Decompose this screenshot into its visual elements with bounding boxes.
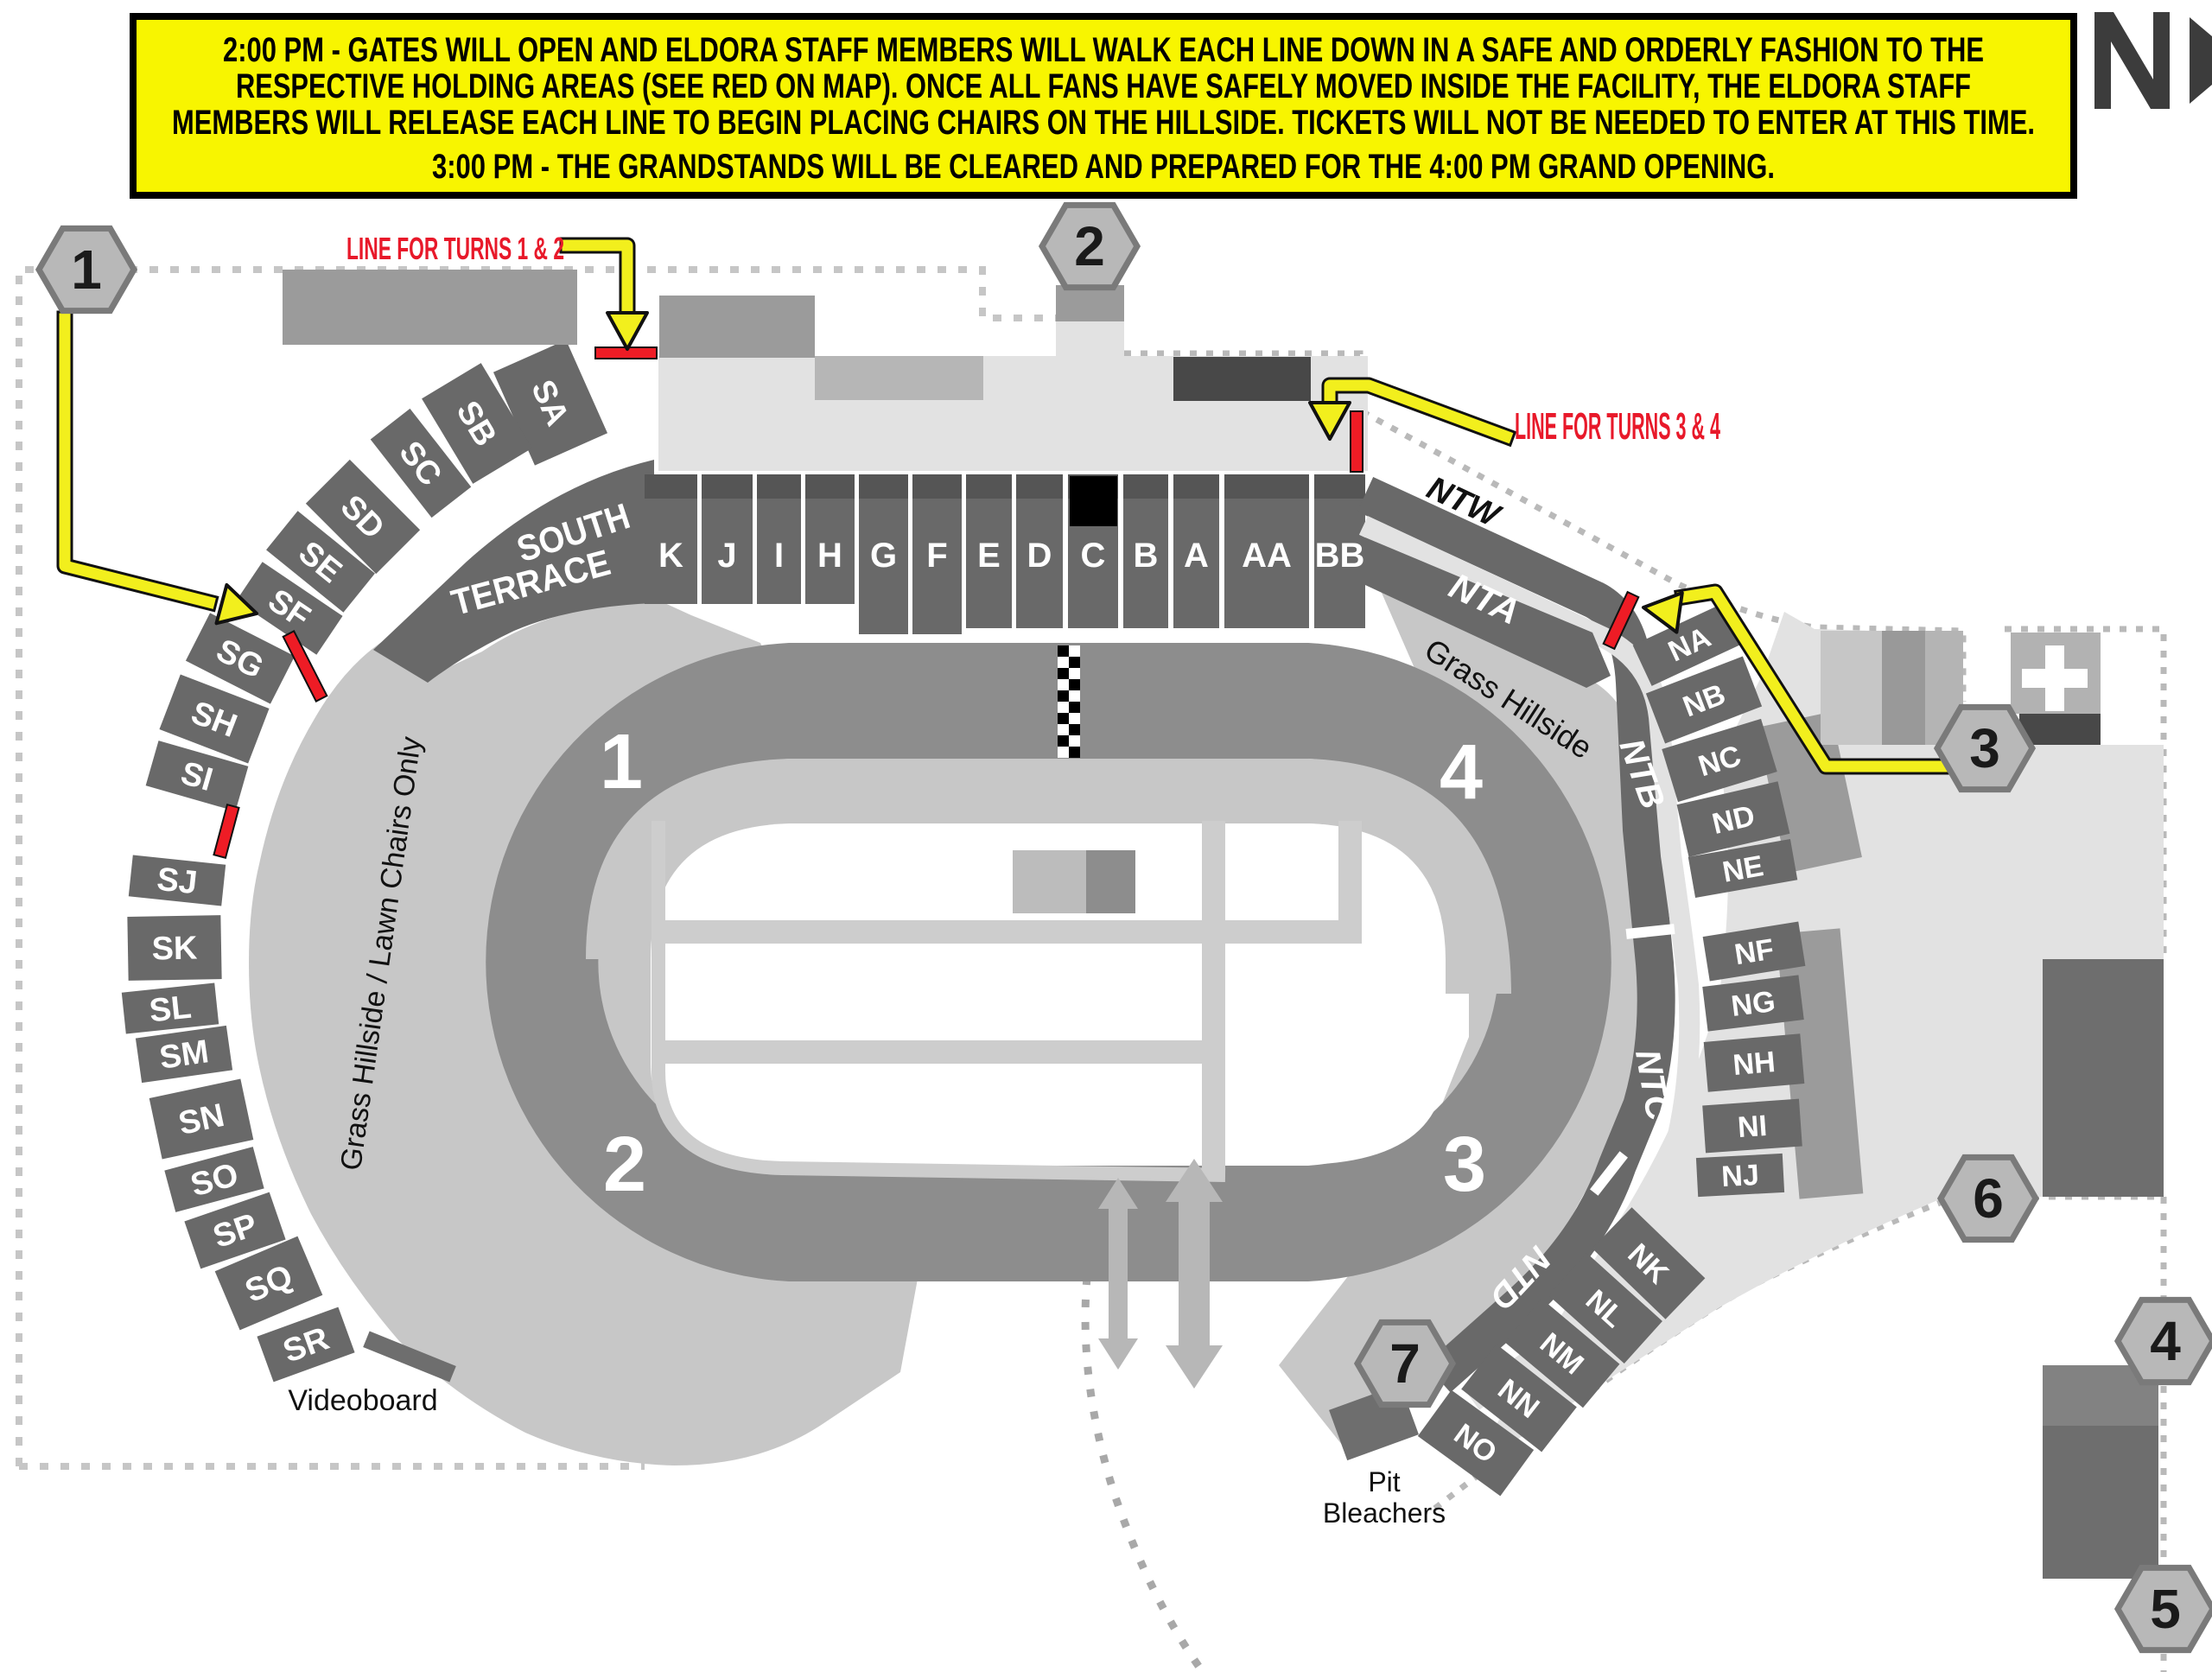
svg-text:Pit: Pit — [1368, 1466, 1400, 1497]
svg-text:6: 6 — [1973, 1167, 2004, 1230]
svg-text:1: 1 — [600, 719, 643, 805]
svg-text:LINE FOR TURNS 3 & 4: LINE FOR TURNS 3 & 4 — [1515, 405, 1720, 448]
svg-text:K: K — [658, 537, 683, 575]
svg-text:MEMBERS WILL RELEASE EACH LINE: MEMBERS WILL RELEASE EACH LINE TO BEGIN … — [172, 104, 2035, 142]
svg-text:J: J — [717, 537, 736, 575]
svg-text:NJ: NJ — [1720, 1159, 1759, 1193]
svg-text:NH: NH — [1732, 1046, 1777, 1082]
svg-text:4: 4 — [2150, 1310, 2181, 1372]
svg-text:Videoboard: Videoboard — [288, 1384, 437, 1417]
svg-text:AA: AA — [1242, 537, 1292, 575]
svg-text:2: 2 — [1074, 215, 1105, 277]
svg-text:SL: SL — [148, 989, 194, 1030]
svg-text:G: G — [870, 537, 897, 575]
svg-text:A: A — [1184, 537, 1209, 575]
svg-text:B: B — [1134, 537, 1159, 575]
svg-text:2: 2 — [603, 1122, 646, 1208]
svg-text:RESPECTIVE HOLDING AREAS (SEE: RESPECTIVE HOLDING AREAS (SEE RED ON MAP… — [236, 67, 1971, 105]
svg-text:7: 7 — [1389, 1332, 1421, 1395]
svg-text:I: I — [774, 537, 784, 575]
svg-text:SJ: SJ — [156, 861, 200, 902]
svg-text:3: 3 — [1969, 717, 2000, 779]
svg-text:NE: NE — [1720, 849, 1766, 889]
svg-text:3:00 PM - THE GRANDSTANDS WILL: 3:00 PM - THE GRANDSTANDS WILL BE CLEARE… — [432, 148, 1775, 186]
svg-text:2:00 PM - GATES WILL OPEN AND: 2:00 PM - GATES WILL OPEN AND ELDORA STA… — [223, 31, 1984, 69]
svg-text:NF: NF — [1732, 933, 1777, 972]
svg-text:4: 4 — [1440, 729, 1483, 816]
svg-text:3: 3 — [1443, 1122, 1486, 1208]
svg-text:SM: SM — [157, 1033, 211, 1077]
svg-text:E: E — [977, 537, 1001, 575]
svg-text:C: C — [1081, 537, 1106, 575]
svg-text:5: 5 — [2150, 1578, 2181, 1640]
svg-text:F: F — [926, 537, 947, 575]
svg-text:H: H — [817, 537, 842, 575]
svg-text:1: 1 — [71, 238, 102, 301]
svg-text:LINE FOR TURNS 1 & 2: LINE FOR TURNS 1 & 2 — [346, 231, 564, 266]
svg-text:D: D — [1027, 537, 1052, 575]
svg-text:NG: NG — [1729, 985, 1777, 1023]
svg-text:SK: SK — [151, 931, 198, 968]
svg-text:Bleachers: Bleachers — [1323, 1497, 1446, 1529]
svg-text:NI: NI — [1737, 1109, 1769, 1144]
svg-text:BB: BB — [1315, 537, 1365, 575]
